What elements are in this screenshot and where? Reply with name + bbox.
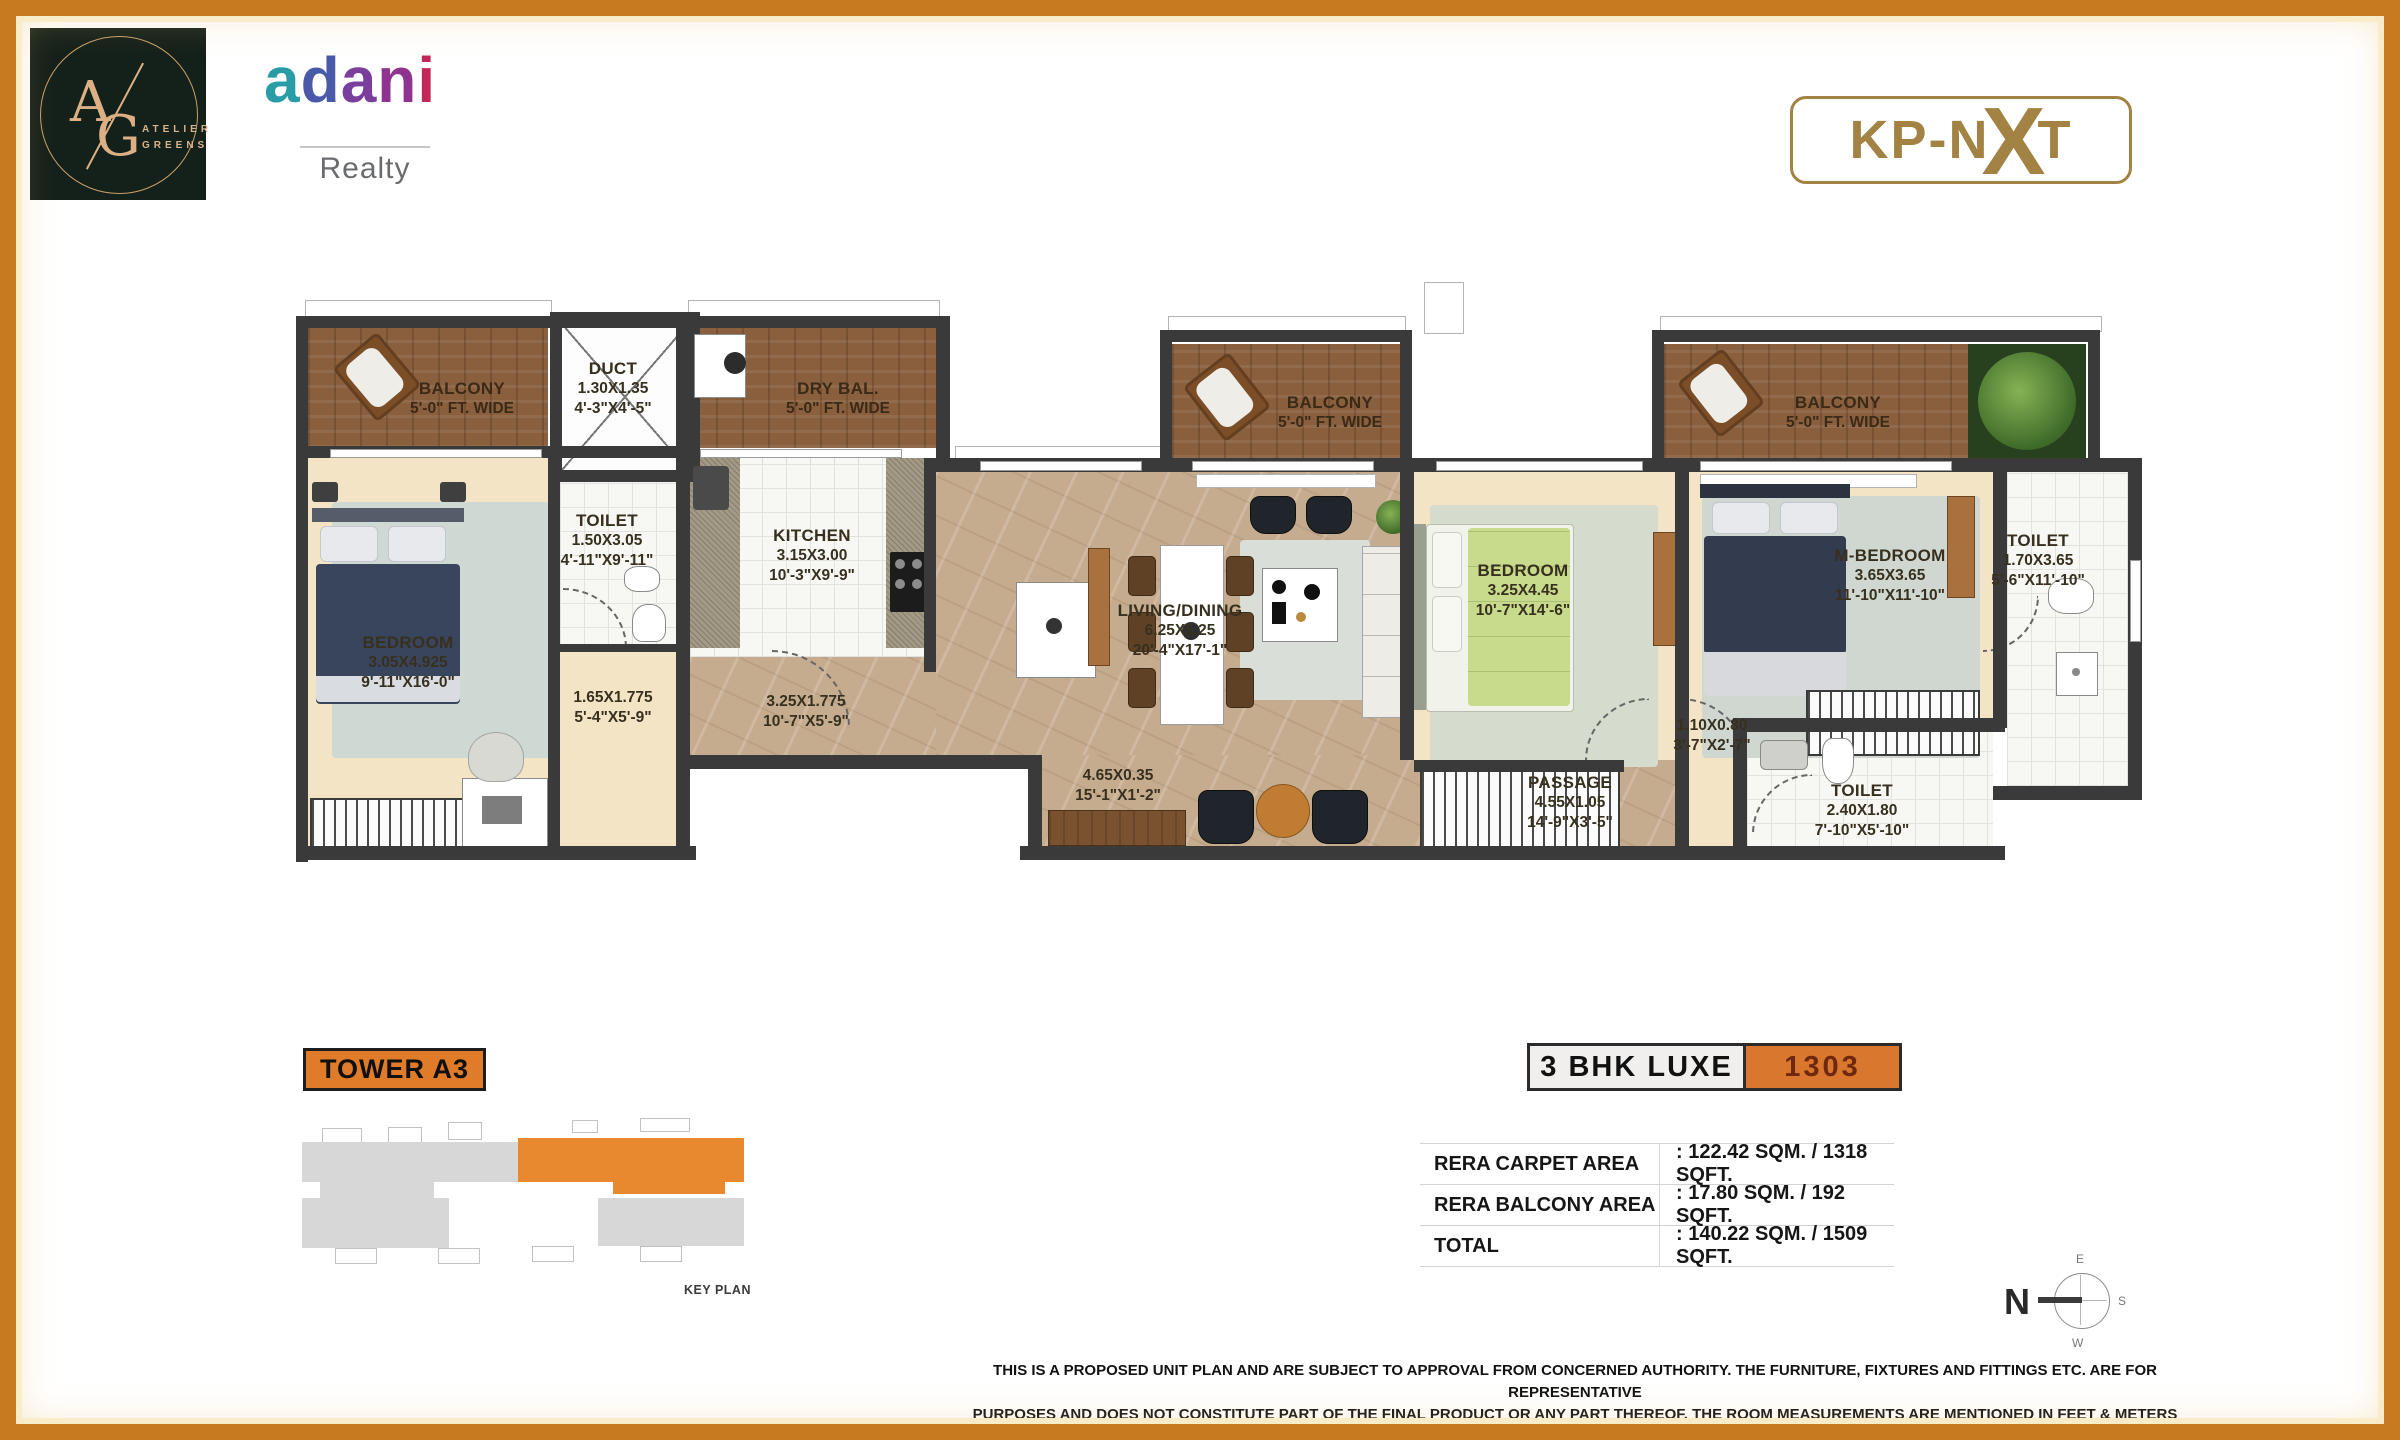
wall [1652, 330, 1664, 472]
adani-divider [300, 146, 430, 148]
key-plan-block [532, 1246, 574, 1262]
table-decor [1272, 580, 1286, 594]
compass-west-label: W [2072, 1336, 2083, 1350]
adani-logo: adani [264, 48, 436, 112]
armchair [1312, 790, 1368, 844]
wc-icon [632, 604, 666, 642]
window [1192, 461, 1374, 471]
compass-crosshair [2082, 1300, 2107, 1301]
chair [468, 732, 524, 782]
unit-number-badge: 1303 [1746, 1043, 1902, 1091]
wall [2088, 330, 2100, 472]
armchair [1306, 496, 1352, 534]
room-label-toilet-right: TOILET1.70X3.655'-6"X11'-10" [1991, 530, 2085, 591]
wall [560, 644, 676, 652]
key-plan-caption: KEY PLAN [684, 1283, 751, 1297]
adani-letter: a [341, 44, 378, 116]
area-row-value: : 17.80 SQM. / 192 SQFT. [1660, 1182, 1894, 1228]
room-label-balcony-center: BALCONY5'-0" FT. WIDE [1278, 392, 1382, 433]
room-label-bedroom-left: BEDROOM3.05X4.9259'-11"X16'-0" [361, 632, 455, 693]
pillow [388, 526, 446, 562]
wall [1414, 760, 1624, 772]
table-row: RERA CARPET AREA : 122.42 SQM. / 1318 SQ… [1420, 1144, 1894, 1185]
side-table [440, 482, 466, 502]
compass-south-label: S [2118, 1294, 2126, 1308]
window [2130, 560, 2141, 642]
wall [1652, 330, 2100, 342]
dining-chair [1226, 668, 1254, 708]
wall [1028, 755, 1042, 860]
disclaimer-text: THIS IS A PROPOSED UNIT PLAN AND ARE SUB… [950, 1360, 2200, 1426]
pillow [1432, 596, 1462, 652]
wall [1675, 458, 1689, 850]
key-plan-highlight [613, 1182, 725, 1194]
wall [1020, 846, 2005, 860]
area-row-label: RERA CARPET AREA [1420, 1144, 1660, 1184]
unit-header: 3 BHK LUXE 1303 [1527, 1043, 1902, 1091]
dining-chair [1128, 668, 1156, 708]
kp-nxt-badge: KP-N X T [1790, 96, 2132, 184]
sofa-icon [1362, 546, 1402, 718]
key-plan-block [572, 1120, 598, 1133]
floor-plan-page: A G ATELIER GREENS adani Realty KP-N X T [0, 0, 2400, 1440]
key-plan-block [448, 1122, 482, 1140]
key-plan-block [598, 1198, 744, 1246]
window [1436, 461, 1643, 471]
wall [296, 846, 696, 860]
table-decor [1272, 602, 1286, 624]
dim-label-passage-1: 1.65X1.7755'-4"X5'-9" [573, 688, 652, 728]
sideboard [1048, 810, 1186, 846]
island-decor [1046, 618, 1062, 634]
area-row-label: TOTAL [1420, 1226, 1660, 1266]
areas-table: RERA CARPET AREA : 122.42 SQM. / 1318 SQ… [1420, 1143, 1894, 1267]
adani-letter: a [264, 44, 301, 116]
table-row: RERA BALCONY AREA : 17.80 SQM. / 192 SQF… [1420, 1185, 1894, 1226]
table-decor [1296, 612, 1306, 622]
adani-letter: d [301, 44, 341, 116]
key-plan-block [302, 1142, 518, 1182]
wall [296, 316, 308, 862]
washbasin-icon [1760, 740, 1808, 770]
key-plan-block [640, 1118, 690, 1132]
drain-icon [2072, 668, 2080, 676]
area-row-label: RERA BALCONY AREA [1420, 1185, 1660, 1225]
key-plan-block [438, 1248, 480, 1264]
door-leaf [1088, 548, 1110, 666]
wall [1733, 718, 2005, 732]
wall [1993, 786, 2142, 800]
area-row-value: : 140.22 SQM. / 1509 SQFT. [1660, 1223, 1894, 1269]
round-table [1256, 784, 1310, 838]
washing-machine-door [724, 352, 746, 374]
dining-chair [1128, 556, 1156, 596]
wc-icon [1822, 738, 1854, 784]
area-row-value: : 122.42 SQM. / 1318 SQFT. [1660, 1141, 1894, 1187]
room-label-toilet-bottom: TOILET2.40X1.807'-10"X5'-10" [1815, 780, 1909, 841]
room-label-balcony-left: BALCONY5'-0" FT. WIDE [410, 378, 514, 419]
key-plan-block [335, 1248, 377, 1264]
window [1700, 461, 1952, 471]
pillow [1712, 502, 1770, 534]
table-decor [1304, 584, 1320, 600]
pillow [1780, 502, 1838, 534]
key-plan-block [320, 1182, 434, 1198]
wall [676, 755, 1040, 769]
pillow [1432, 532, 1462, 588]
tower-label: TOWER A3 [303, 1048, 486, 1091]
wall [296, 316, 950, 328]
door-leaf [1947, 496, 1975, 598]
window [700, 449, 902, 458]
room-label-kitchen: KITCHEN3.15X3.0010'-3"X9'-9" [769, 525, 855, 586]
room-label-balcony-right: BALCONY5'-0" FT. WIDE [1786, 392, 1890, 433]
room-label-bedroom-mid: BEDROOM3.25X4.4510'-7"X14'-6" [1476, 560, 1570, 621]
table-row: TOTAL : 140.22 SQM. / 1509 SQFT. [1420, 1226, 1894, 1267]
compass-east-label: E [2076, 1252, 2084, 1266]
shaft-protrusion [1424, 282, 1464, 334]
disclaimer-line2: PURPOSES AND DOES NOT CONSTITUTE PART OF… [950, 1404, 2200, 1426]
compass-needle [2038, 1297, 2082, 1303]
wall [1160, 330, 1172, 472]
bed-headboard [1700, 484, 1850, 498]
logo-monogram-g: G [96, 104, 141, 169]
dining-chair [1226, 556, 1254, 596]
hob-icon [890, 552, 928, 612]
key-plan-block [640, 1246, 682, 1262]
bed-headboard [1414, 524, 1426, 710]
disclaimer-line1: THIS IS A PROPOSED UNIT PLAN AND ARE SUB… [950, 1360, 2200, 1404]
room-label-living-dining: LIVING/DINING6.25X5.2520'-4"X17'-1" [1118, 600, 1243, 661]
room-label-m-bedroom: M-BEDROOM3.65X3.6511'-10"X11'-10" [1834, 545, 1945, 606]
unit-type-label: 3 BHK LUXE [1527, 1043, 1746, 1091]
dim-label-door: 1.10X0.803'-7"X2'-7" [1673, 716, 1750, 756]
dim-label-ledge: 4.65X0.3515'-1"X1'-2" [1075, 766, 1161, 806]
side-table [312, 482, 338, 502]
wall [924, 458, 936, 672]
dim-label-passage-2: 3.25X1.77510'-7"X5'-9" [763, 692, 849, 732]
window [330, 449, 542, 458]
bed-icon [1704, 536, 1846, 654]
kp-nxt-text-x: X [1981, 112, 2045, 172]
room-label-dry-bal: DRY BAL.5'-0" FT. WIDE [786, 378, 890, 419]
wall [936, 316, 950, 472]
key-plan-highlight [518, 1138, 744, 1182]
wall [1400, 330, 1412, 472]
logo-text-line1: ATELIER [142, 124, 212, 135]
wall [1160, 330, 1412, 342]
adani-letter: i [417, 44, 436, 116]
adani-letter: n [377, 44, 417, 116]
armchair [1250, 496, 1296, 534]
compass-north-label: N [2004, 1281, 2030, 1323]
window [980, 461, 1142, 471]
pillow [320, 526, 378, 562]
logo-text-line2: GREENS [142, 140, 208, 151]
wall [1400, 458, 1414, 760]
kitchen-sink-icon [693, 466, 729, 510]
key-plan-block [302, 1198, 449, 1248]
wall [548, 448, 560, 848]
room-label-passage: PASSAGE4.55X1.0514'-9"X3'-5" [1527, 772, 1613, 833]
laptop-icon [482, 796, 522, 824]
room-label-duct: DUCT1.30X1.354'-3"X4'-5" [574, 358, 651, 419]
adani-realty-label: Realty [300, 152, 430, 186]
bed-headboard [312, 508, 464, 522]
window-sill [1196, 474, 1376, 488]
armchair [1198, 790, 1254, 844]
atelier-greens-logo: A G ATELIER GREENS [30, 28, 206, 200]
kp-nxt-text-left: KP-N [1849, 109, 1989, 171]
passage-1-floor [560, 652, 676, 848]
wall [1993, 458, 2007, 728]
plant-icon [1978, 352, 2076, 450]
room-label-toilet-1: TOILET1.50X3.054'-11"X9'-11" [561, 510, 654, 571]
